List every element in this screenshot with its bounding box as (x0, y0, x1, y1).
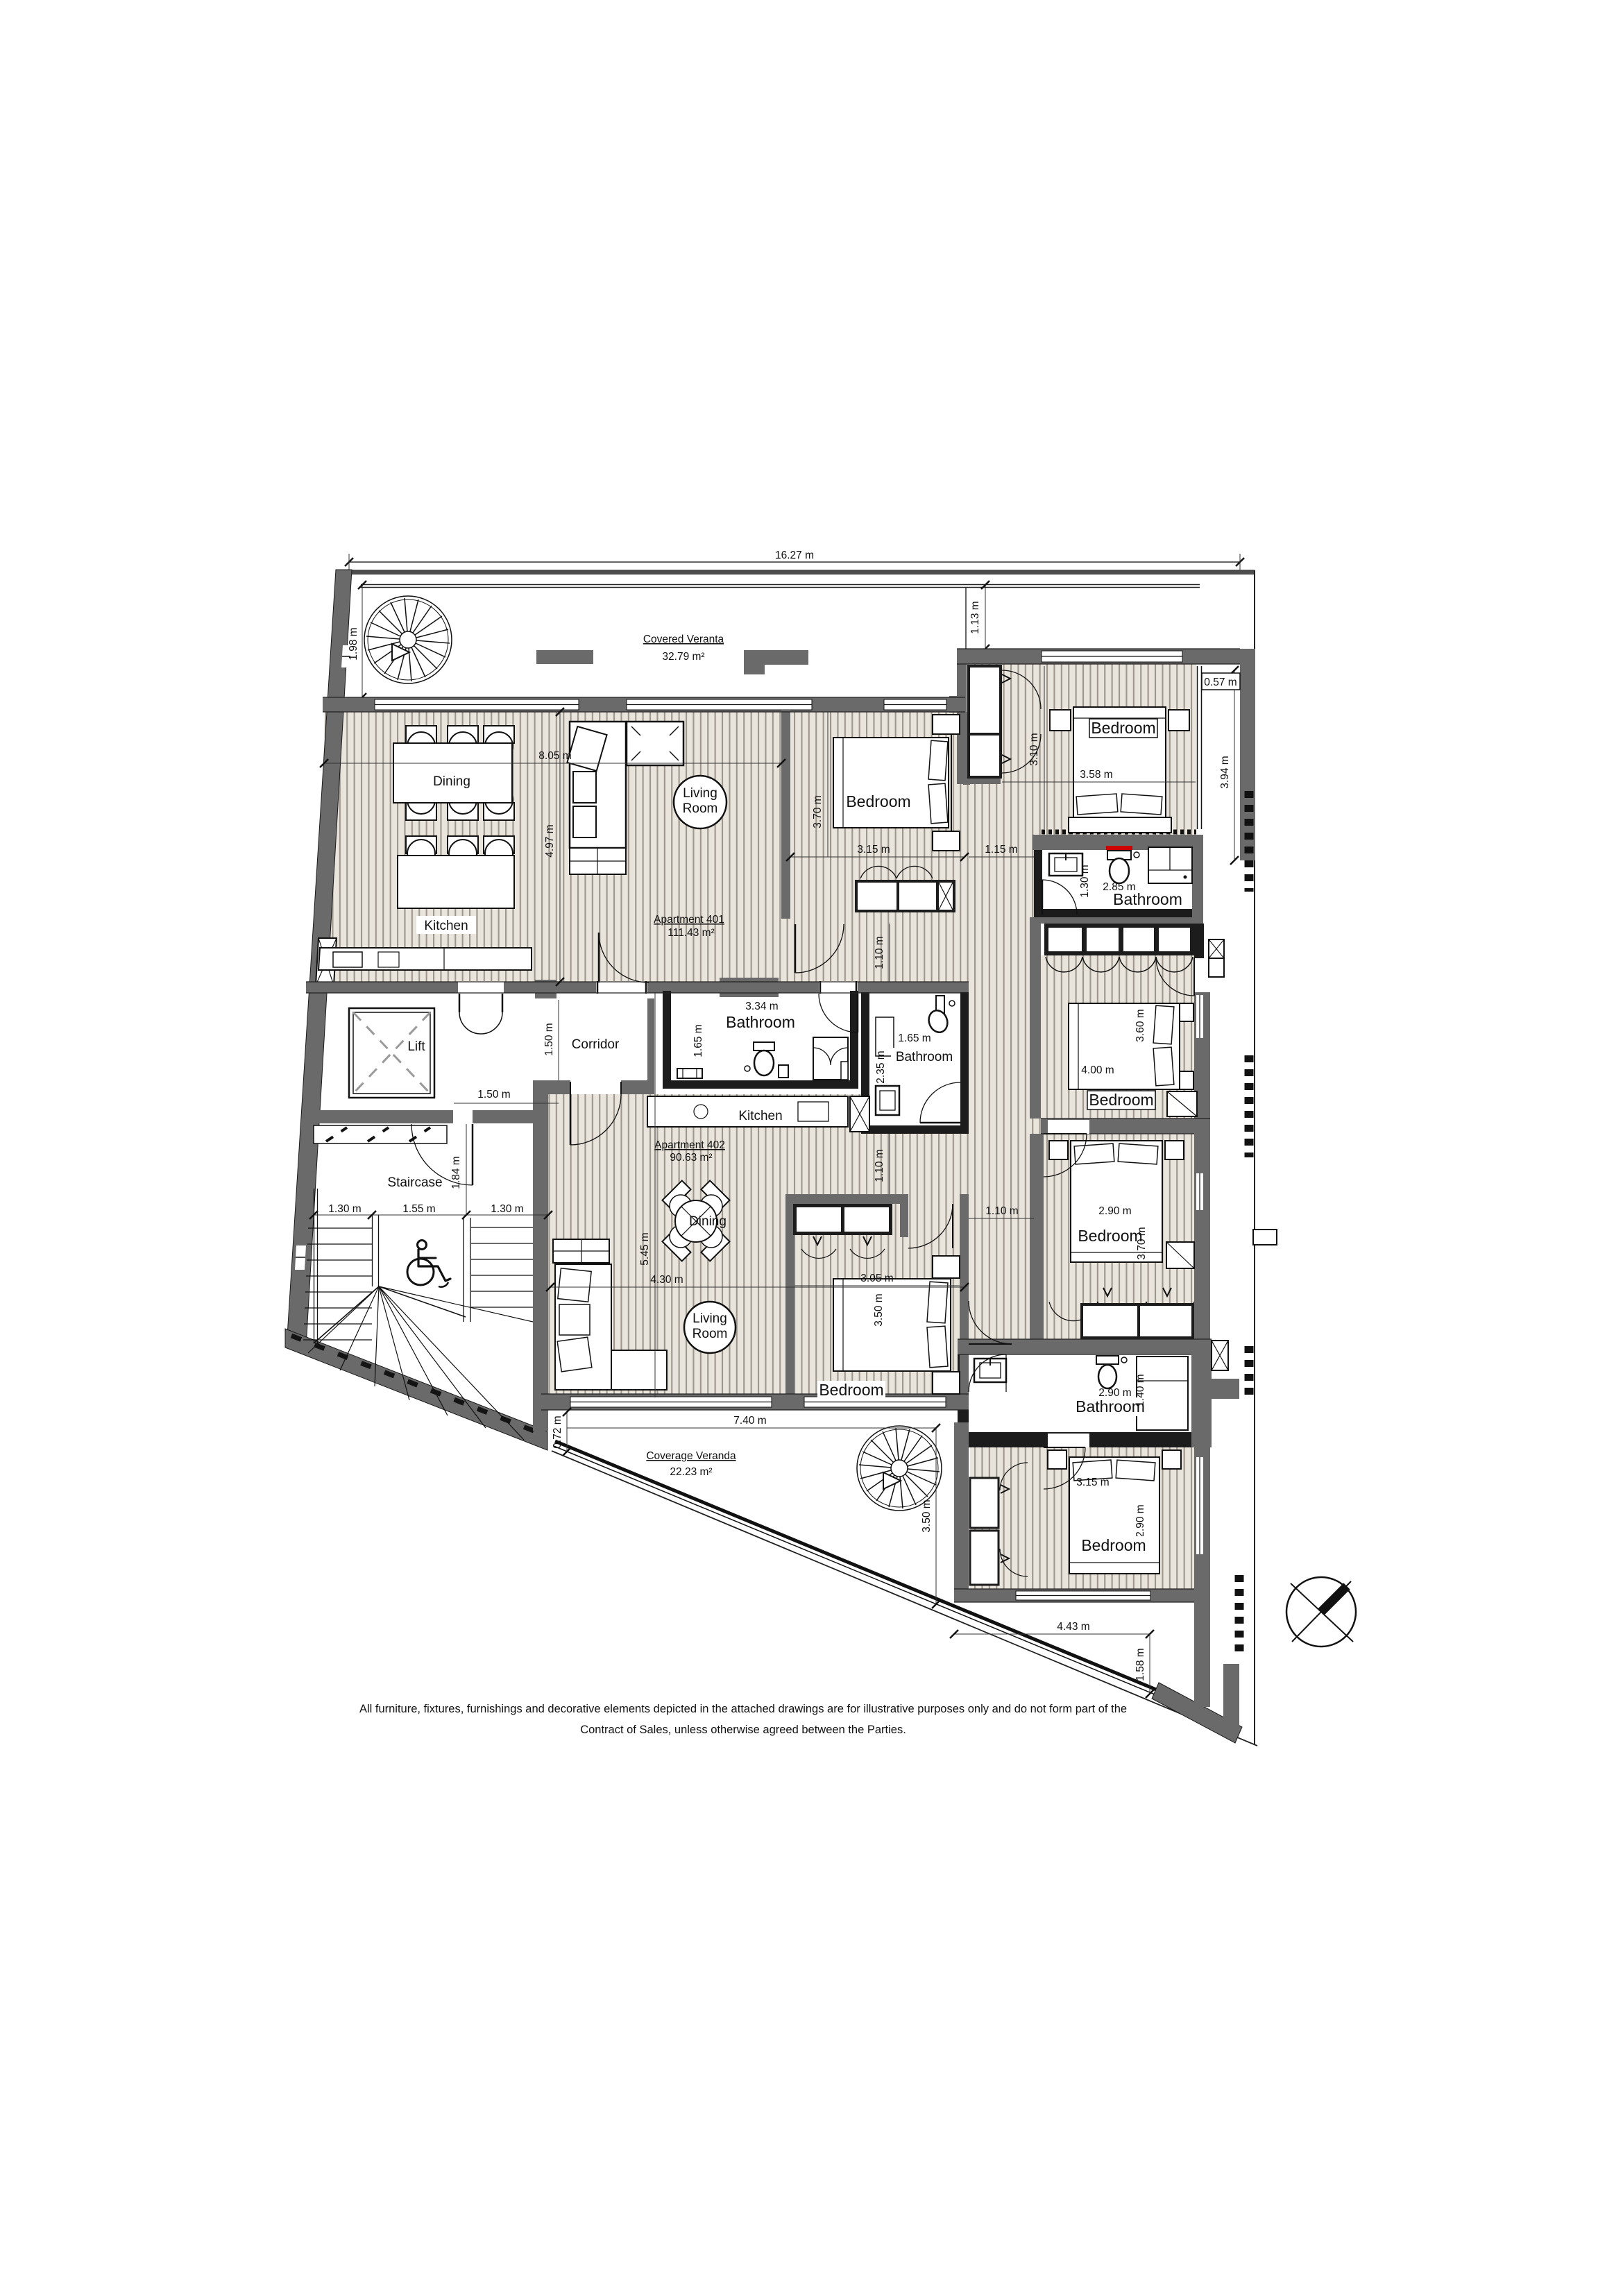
svg-text:1.50 m: 1.50 m (543, 1023, 555, 1055)
svg-text:1.15 m: 1.15 m (985, 844, 1017, 856)
svg-text:90.63 m²: 90.63 m² (670, 1152, 712, 1164)
svg-text:Bedroom: Bedroom (1091, 719, 1155, 737)
svg-text:1.50 m: 1.50 m (477, 1089, 510, 1100)
svg-text:1.13 m: 1.13 m (969, 601, 981, 633)
svg-text:1.30 m: 1.30 m (1079, 865, 1091, 897)
svg-text:Bedroom: Bedroom (1089, 1091, 1153, 1109)
svg-text:1.10 m: 1.10 m (874, 936, 885, 969)
svg-text:3.60 m: 3.60 m (1135, 1009, 1146, 1041)
svg-text:Lift: Lift (407, 1039, 425, 1054)
svg-text:3.58 m: 3.58 m (1080, 769, 1112, 781)
svg-text:Bedroom: Bedroom (846, 792, 910, 810)
svg-text:Room: Room (683, 801, 718, 816)
svg-text:16.27 m: 16.27 m (775, 550, 814, 561)
svg-text:Apartment 402: Apartment 402 (654, 1139, 725, 1151)
svg-text:Living: Living (683, 786, 717, 801)
svg-text:1.30 m: 1.30 m (328, 1203, 361, 1215)
svg-text:3.10 m: 3.10 m (1028, 733, 1040, 765)
svg-text:Bathroom: Bathroom (726, 1013, 795, 1031)
svg-text:Covered Veranta: Covered Veranta (643, 633, 724, 645)
svg-text:2.35 m: 2.35 m (875, 1051, 887, 1083)
svg-text:Contract of Sales, unless othe: Contract of Sales, unless otherwise agre… (580, 1724, 906, 1736)
svg-text:Bedroom: Bedroom (1081, 1536, 1146, 1554)
svg-text:3.50 m: 3.50 m (921, 1499, 933, 1532)
svg-text:7.40 m: 7.40 m (733, 1415, 766, 1427)
svg-text:3.05 m: 3.05 m (860, 1273, 893, 1284)
svg-text:Kitchen: Kitchen (424, 919, 468, 933)
svg-text:Dining: Dining (689, 1214, 726, 1229)
svg-text:1.30 m: 1.30 m (491, 1203, 523, 1215)
svg-text:0.72 m: 0.72 m (552, 1415, 563, 1448)
svg-text:3.50 m: 3.50 m (873, 1293, 885, 1326)
svg-text:22.23 m²: 22.23 m² (670, 1466, 712, 1478)
svg-text:4.00 m: 4.00 m (1081, 1064, 1114, 1076)
svg-text:Staircase: Staircase (387, 1175, 442, 1190)
svg-text:3.34 m: 3.34 m (745, 1001, 778, 1012)
svg-text:8.05 m: 8.05 m (538, 750, 571, 762)
svg-text:2.90 m: 2.90 m (1098, 1205, 1131, 1217)
svg-text:3.70 m: 3.70 m (1136, 1227, 1148, 1259)
svg-text:4.43 m: 4.43 m (1057, 1621, 1089, 1633)
svg-text:1.55 m: 1.55 m (402, 1203, 435, 1215)
svg-text:Bedroom: Bedroom (1078, 1227, 1142, 1245)
svg-text:Kitchen: Kitchen (738, 1109, 782, 1123)
svg-text:1.84 m: 1.84 m (450, 1156, 462, 1189)
svg-text:Room: Room (692, 1327, 728, 1341)
svg-text:Dining: Dining (433, 774, 470, 789)
svg-text:1.65 m: 1.65 m (692, 1024, 704, 1057)
svg-text:1.10 m: 1.10 m (874, 1149, 885, 1182)
svg-text:1.10 m: 1.10 m (985, 1205, 1018, 1217)
svg-text:3.94 m: 3.94 m (1219, 756, 1231, 788)
svg-text:4.30 m: 4.30 m (650, 1274, 683, 1286)
svg-text:0.57 m: 0.57 m (1204, 677, 1237, 688)
svg-text:2.90 m: 2.90 m (1135, 1504, 1146, 1537)
svg-text:1.58 m: 1.58 m (1135, 1648, 1146, 1681)
svg-text:1.65 m: 1.65 m (898, 1032, 931, 1044)
svg-text:All furniture, fixtures, furni: All furniture, fixtures, furnishings and… (359, 1703, 1127, 1715)
svg-text:1.98 m: 1.98 m (348, 627, 359, 660)
svg-text:Bedroom: Bedroom (819, 1381, 883, 1399)
svg-text:1.40 m: 1.40 m (1135, 1374, 1146, 1406)
svg-text:3.15 m: 3.15 m (1076, 1477, 1109, 1488)
svg-text:Apartment 401: Apartment 401 (654, 914, 724, 926)
svg-text:Bathroom: Bathroom (896, 1050, 953, 1064)
svg-text:Corridor: Corridor (572, 1037, 620, 1052)
svg-text:Bathroom: Bathroom (1113, 890, 1182, 908)
svg-text:3.15 m: 3.15 m (857, 844, 890, 856)
svg-text:111.43 m²: 111.43 m² (668, 927, 715, 939)
svg-text:Living: Living (692, 1311, 727, 1326)
svg-text:32.79 m²: 32.79 m² (662, 651, 704, 663)
svg-text:Coverage Veranda: Coverage Veranda (646, 1450, 736, 1462)
svg-text:5.45 m: 5.45 m (639, 1232, 651, 1265)
svg-text:4.97 m: 4.97 m (544, 824, 556, 857)
svg-text:3.70 m: 3.70 m (812, 795, 824, 828)
